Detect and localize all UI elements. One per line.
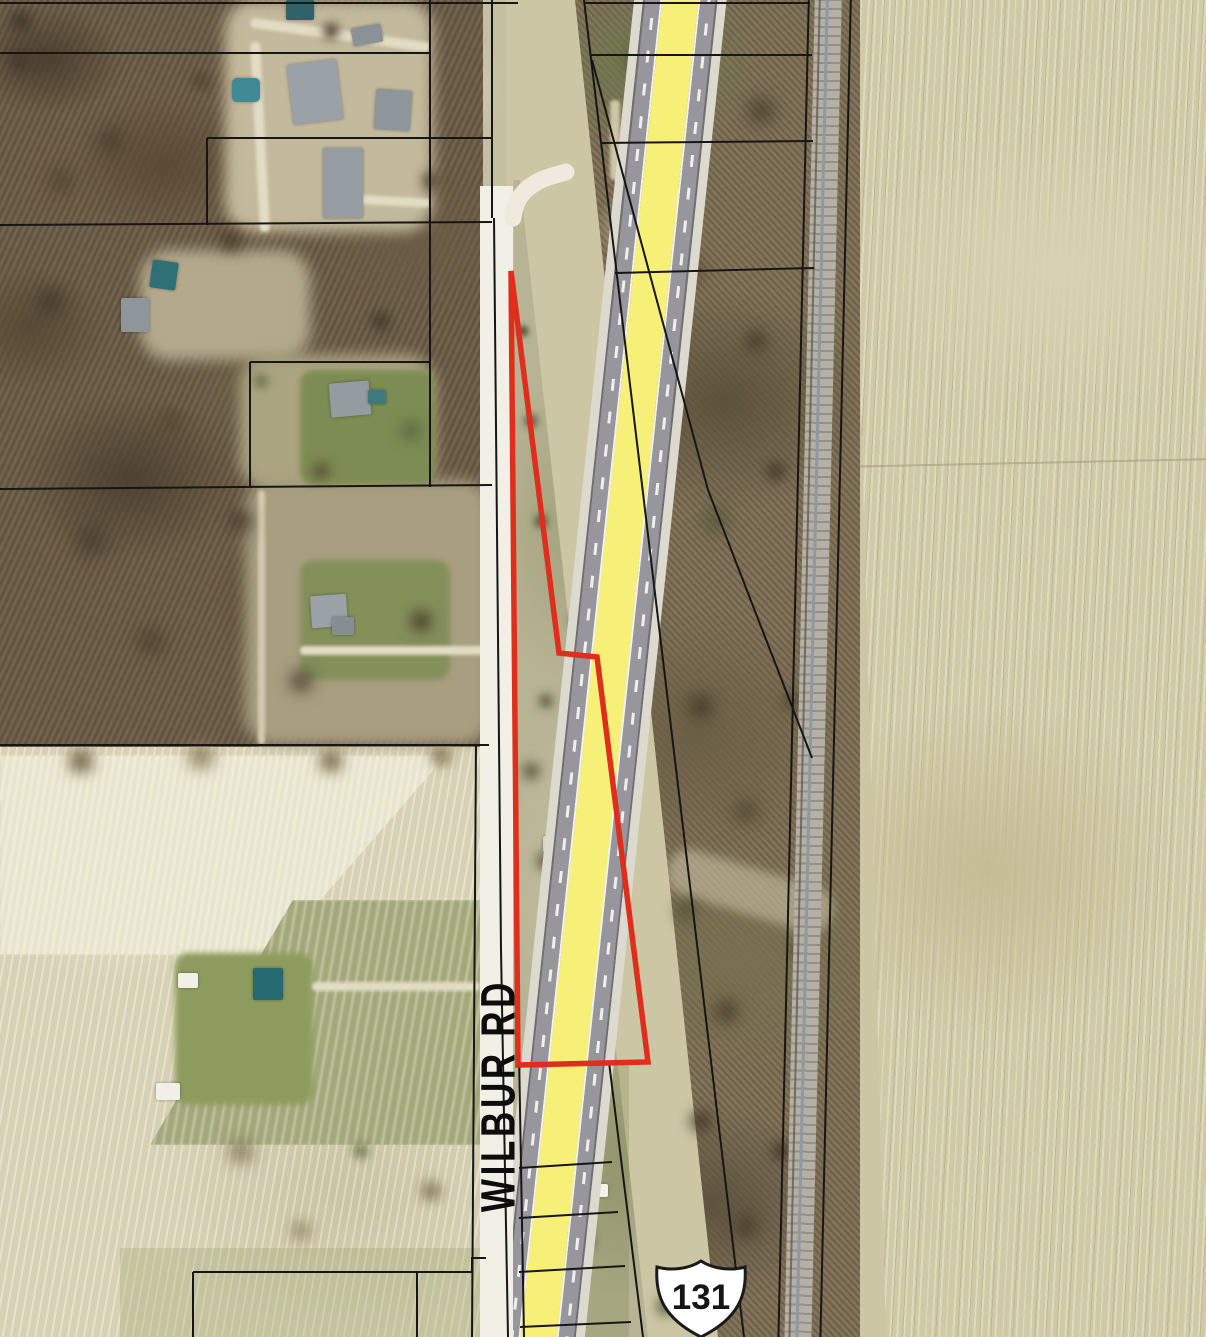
parcel-boundary-lines — [0, 0, 814, 1337]
parcel-map-canvas[interactable]: WILBUR RD 131 — [0, 0, 1206, 1337]
us-route-shield: 131 — [651, 1256, 751, 1337]
road-junction — [513, 172, 566, 218]
route-number: 131 — [672, 1278, 730, 1317]
parcel-line-overlay — [0, 0, 1206, 1337]
selected-parcel-outline[interactable] — [511, 271, 648, 1065]
